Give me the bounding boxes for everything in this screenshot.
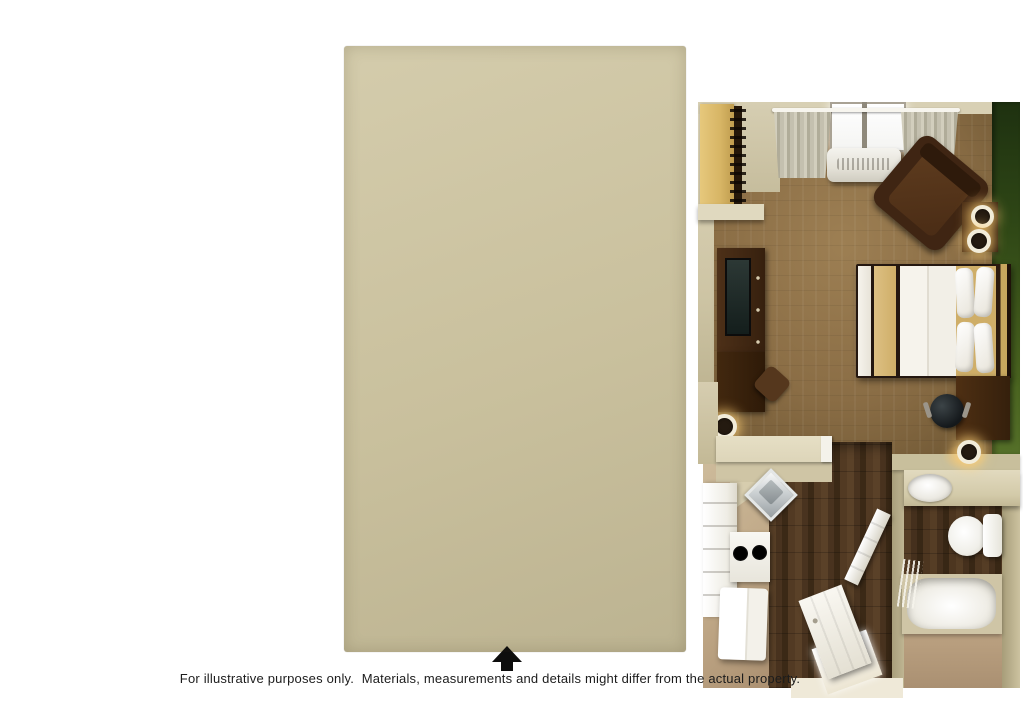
bathroom-sink (908, 474, 952, 502)
closet-shelf (700, 104, 734, 206)
curtain-left (774, 112, 831, 178)
north-arrow-stem (501, 662, 513, 671)
nightstand-lamp-2 (967, 229, 991, 253)
closet-hangers (730, 108, 746, 202)
pillow (955, 322, 976, 373)
stove-burner (752, 545, 767, 560)
bathtub (907, 578, 996, 629)
pillow (955, 268, 976, 319)
tv (725, 258, 751, 336)
half-wall (698, 382, 718, 464)
kitchen-sink-basin (758, 479, 783, 504)
curtain-rod (772, 108, 960, 112)
entry-door-handle (812, 618, 818, 624)
counter-end-panel (821, 436, 832, 462)
pillow (973, 322, 994, 373)
bed-accent-runner (874, 266, 896, 376)
stove-burner (733, 546, 748, 561)
refrigerator (718, 587, 768, 661)
office-chair (930, 394, 964, 428)
plan-shadow-overlay (344, 46, 686, 652)
counter-top (716, 436, 832, 462)
pillow (973, 266, 994, 317)
page: { "caption": { "text": "For illustrative… (0, 0, 1023, 716)
bed-duvet (900, 266, 956, 376)
bed-headboard (996, 264, 1011, 378)
toilet-tank (983, 514, 1002, 557)
closet-nook-wall (740, 102, 780, 192)
closet-ledge (698, 204, 764, 220)
bed (856, 264, 1011, 378)
ac-unit-vents (837, 158, 891, 170)
disclaimer-text: For illustrative purposes only. Material… (0, 671, 980, 686)
nightstand-lamp-1 (971, 205, 994, 228)
bed-foot-linen (858, 266, 871, 376)
toilet-bowl (948, 516, 986, 556)
desk-lamp (957, 440, 981, 464)
